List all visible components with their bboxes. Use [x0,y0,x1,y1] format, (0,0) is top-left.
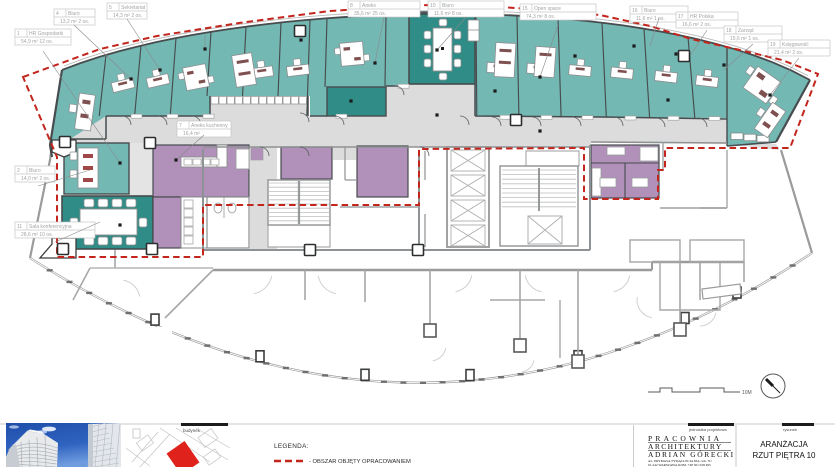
svg-text:28,6 m² 10 os.: 28,6 m² 10 os. [21,232,53,238]
svg-text:15,6 m² 1 os.: 15,6 m² 1 os. [730,36,759,42]
svg-text:4: 4 [56,11,59,17]
svg-text:17: 17 [678,14,684,20]
svg-text:Aneks: Aneks [362,3,376,9]
svg-text:11: 11 [17,224,22,230]
svg-text:74,3 m² 8 os.: 74,3 m² 8 os. [526,14,555,20]
svg-text:RZUT PIĘTRA 10: RZUT PIĘTRA 10 [753,451,817,460]
svg-text:18: 18 [726,28,732,34]
svg-text:Sekretariat: Sekretariat [121,5,146,11]
svg-text:35,6 m² 25 os.: 35,6 m² 25 os. [354,11,386,17]
svg-text:1: 1 [17,31,20,37]
svg-text:14,0 m² 2 os.: 14,0 m² 2 os. [21,176,50,182]
svg-text:16,6 m² 2 os.: 16,6 m² 2 os. [682,22,711,28]
svg-text:ARANŻACJA: ARANŻACJA [760,440,808,449]
svg-text:Biuro: Biuro [442,3,454,9]
svg-text:11,6 m² 1 os.: 11,6 m² 1 os. [636,16,665,22]
svg-text:16: 16 [632,8,638,14]
svg-text:Open space: Open space [534,6,561,12]
svg-text:2: 2 [17,168,20,174]
svg-text:Zarząd: Zarząd [738,28,754,34]
svg-text:5: 5 [109,5,112,11]
svg-text:Biuro: Biuro [29,168,41,174]
svg-text:54,9 m² 12 os.: 54,9 m² 12 os. [21,39,53,45]
svg-text:10M: 10M [742,390,752,396]
svg-text:Sala konferencyjna: Sala konferencyjna [29,224,72,230]
svg-text:21,4 m² 2 os.: 21,4 m² 2 os. [774,50,803,56]
svg-text:HR Polska: HR Polska [690,14,714,20]
svg-text:13,2 m² 2 os.: 13,2 m² 2 os. [60,19,89,25]
svg-text:10: 10 [430,3,436,9]
svg-text:16,4 m²: 16,4 m² [183,131,200,137]
svg-text:Biuro: Biuro [644,8,656,14]
svg-text:Księgowość: Księgowość [782,42,809,48]
svg-text:- OBSZAR OBJĘTY OPRACOWANIEM: - OBSZAR OBJĘTY OPRACOWANIEM [309,459,411,465]
svg-text:19: 19 [770,42,776,48]
svg-text:11,6 m² 8 os.: 11,6 m² 8 os. [434,11,463,17]
svg-text:01-242 WARSZAWA KOM. +48 501: 01-242 WARSZAWA KOM. +48 501 028 495 [648,463,711,467]
svg-text:15: 15 [522,6,528,12]
svg-text:Aneks kuchenny: Aneks kuchenny [191,123,228,129]
svg-text:Biuro: Biuro [68,11,80,17]
svg-text:rysunek: rysunek [783,427,797,432]
svg-text:HR Gospodarki: HR Gospodarki [29,31,63,37]
svg-text:LEGENDA:: LEGENDA: [274,443,309,450]
svg-text:7: 7 [179,123,182,129]
svg-text:budynek: budynek [183,428,201,433]
svg-text:14,3 m² 2 os.: 14,3 m² 2 os. [113,13,142,19]
svg-text:8: 8 [350,3,353,9]
svg-text:jednostka projektowa: jednostka projektowa [688,427,727,432]
